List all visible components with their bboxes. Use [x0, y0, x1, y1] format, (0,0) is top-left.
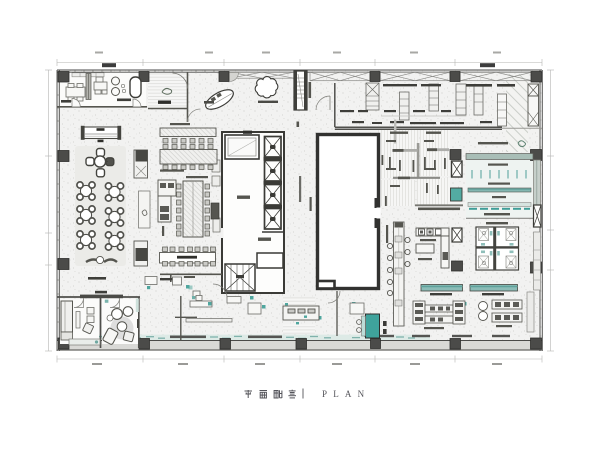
svg-text:PLAN: PLAN [322, 389, 370, 399]
